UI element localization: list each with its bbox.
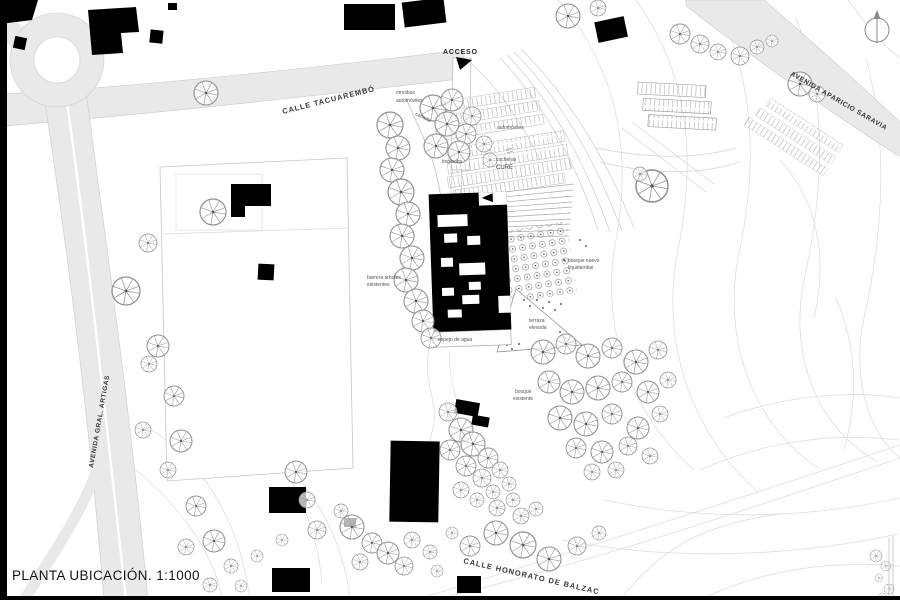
tree-icon bbox=[476, 136, 492, 152]
tree-icon bbox=[285, 461, 307, 483]
tree-icon bbox=[531, 340, 555, 364]
building-block bbox=[149, 29, 163, 43]
tree-icon bbox=[637, 381, 659, 403]
building-block bbox=[471, 415, 489, 428]
tree-icon bbox=[377, 542, 399, 564]
tree-icon bbox=[139, 234, 157, 252]
tree-icon bbox=[456, 456, 476, 476]
annotation-terraza-1: terraza bbox=[529, 318, 545, 324]
annotation-barrera-2: existentes bbox=[367, 282, 390, 288]
tree-icon bbox=[586, 376, 610, 400]
building-block bbox=[402, 0, 447, 27]
building-block bbox=[272, 568, 310, 592]
tree-icon bbox=[453, 482, 469, 498]
tree-icon bbox=[160, 462, 176, 478]
building-block bbox=[231, 202, 245, 217]
tree-icon bbox=[473, 469, 491, 487]
tree-icon bbox=[870, 550, 882, 562]
tree-icon bbox=[377, 112, 403, 138]
tree-icon bbox=[592, 526, 606, 540]
tree-icon bbox=[276, 534, 288, 546]
tree-icon bbox=[560, 380, 584, 404]
tree-icon bbox=[446, 527, 458, 539]
annotation-automoviles-este: automóviles bbox=[497, 125, 524, 131]
tree-icon bbox=[170, 430, 192, 452]
tree-icon bbox=[423, 545, 437, 559]
tree-icon bbox=[627, 417, 649, 439]
tree-icon bbox=[380, 158, 404, 182]
building-block bbox=[13, 36, 27, 50]
tree-icon bbox=[633, 167, 647, 181]
tree-icon bbox=[574, 412, 598, 436]
liquidambar-grid bbox=[501, 221, 577, 302]
tree-icon bbox=[386, 136, 410, 160]
tree-icon bbox=[584, 464, 600, 480]
tree-icon bbox=[710, 44, 726, 60]
building-block bbox=[258, 264, 275, 281]
tree-icon bbox=[489, 500, 505, 516]
annotation-tinglados: tinglados bbox=[442, 159, 463, 165]
annotation-bosque-nuevo-1: bosque nuevo bbox=[568, 258, 600, 264]
tree-icon bbox=[691, 35, 709, 53]
annotation-espejo: espejo de agua bbox=[438, 337, 472, 343]
building-block bbox=[457, 576, 481, 593]
tree-icon bbox=[340, 515, 364, 539]
annotation-automoviles-oeste: automóviles bbox=[396, 98, 423, 104]
tree-icon bbox=[147, 335, 169, 357]
annotation-terraza-2: elevada bbox=[529, 325, 547, 331]
site-plan: CALLE TACUAREMBÓ AVENIDA APARICIO SARAVI… bbox=[0, 0, 900, 600]
tree-icon bbox=[424, 134, 448, 158]
tree-icon bbox=[470, 493, 484, 507]
tree-icon bbox=[602, 404, 622, 424]
tree-icon bbox=[203, 530, 225, 552]
left-frame-bar bbox=[0, 0, 7, 600]
tree-icon bbox=[576, 344, 600, 368]
tree-icon bbox=[608, 462, 624, 478]
building-block bbox=[454, 399, 480, 417]
annotation-omnibus: ómnibus bbox=[396, 90, 415, 96]
tree-icon bbox=[224, 559, 238, 573]
tree-icon bbox=[178, 539, 194, 555]
tree-icon bbox=[492, 462, 508, 478]
tree-icon bbox=[619, 437, 637, 455]
tree-icon bbox=[875, 574, 883, 582]
tree-icon bbox=[404, 532, 420, 548]
tree-icon bbox=[602, 338, 622, 358]
tree-icon bbox=[299, 492, 315, 508]
tree-icon bbox=[506, 493, 520, 507]
tree-icon bbox=[200, 199, 226, 225]
annotation-bosque-nuevo-2: liquidambar bbox=[568, 265, 594, 271]
tree-icon bbox=[483, 153, 497, 167]
tree-icon bbox=[186, 496, 206, 516]
annotation-cocheras: cocheras bbox=[496, 157, 517, 163]
tree-icon bbox=[203, 578, 217, 592]
tree-icon bbox=[112, 277, 140, 305]
tree-icon bbox=[396, 202, 420, 226]
tree-icon bbox=[404, 289, 428, 313]
tree-icon bbox=[135, 422, 151, 438]
tree-icon bbox=[649, 341, 667, 359]
tree-icon bbox=[486, 485, 500, 499]
tree-icon bbox=[435, 112, 459, 136]
tree-icon bbox=[731, 47, 749, 65]
tree-icon bbox=[750, 40, 764, 54]
tree-icon bbox=[529, 502, 543, 516]
main-building bbox=[429, 192, 512, 333]
tree-icon bbox=[642, 448, 658, 464]
tree-icon bbox=[660, 372, 676, 388]
tree-icon bbox=[484, 521, 508, 545]
tree-icon bbox=[510, 532, 536, 558]
bottom-frame-bar bbox=[0, 596, 900, 600]
north-arrow-icon bbox=[865, 10, 889, 43]
sports-field bbox=[160, 158, 353, 481]
building-block bbox=[88, 7, 139, 55]
tree-icon bbox=[502, 477, 516, 491]
tree-icon bbox=[439, 403, 457, 421]
tree-icon bbox=[766, 35, 778, 47]
tree-icon bbox=[556, 4, 580, 28]
access-label: ACCESO bbox=[443, 49, 478, 56]
tree-icon bbox=[568, 537, 586, 555]
road-artigas bbox=[44, 90, 148, 600]
tree-icon bbox=[388, 179, 414, 205]
tree-icon bbox=[441, 89, 463, 111]
tree-icon bbox=[652, 406, 668, 422]
tree-icon bbox=[395, 557, 413, 575]
annotation-cocheras-sigla: CURE bbox=[496, 165, 513, 171]
tree-icon bbox=[612, 372, 632, 392]
tree-icon bbox=[513, 508, 529, 524]
tree-icon bbox=[566, 438, 586, 458]
tree-icon bbox=[463, 107, 481, 125]
tree-icon bbox=[251, 550, 263, 562]
annotation-bosque-existente-2: existente bbox=[513, 396, 533, 402]
building-block bbox=[389, 441, 439, 523]
tree-icon bbox=[164, 386, 184, 406]
tree-icon bbox=[440, 440, 460, 460]
building-block bbox=[594, 16, 628, 43]
tree-icon bbox=[670, 24, 690, 44]
tree-icon bbox=[548, 406, 572, 430]
tree-icon bbox=[390, 224, 414, 248]
site-plan-drawing: CALLE TACUAREMBÓ AVENIDA APARICIO SARAVI… bbox=[0, 0, 900, 600]
roundabout-island bbox=[34, 37, 80, 83]
tree-icon bbox=[624, 350, 648, 374]
tree-icon bbox=[194, 81, 218, 105]
annotation-barrera-1: barrera árboles bbox=[367, 275, 401, 281]
building-block bbox=[168, 3, 177, 10]
tree-icon bbox=[556, 334, 576, 354]
tree-icon bbox=[141, 356, 157, 372]
building-block bbox=[344, 4, 395, 30]
tree-icon bbox=[537, 547, 561, 571]
tree-icon bbox=[431, 565, 443, 577]
shed-buildings bbox=[636, 82, 718, 130]
tree-icon bbox=[308, 521, 326, 539]
tree-icon bbox=[235, 580, 247, 592]
tree-icon bbox=[591, 441, 613, 463]
annotation-bosque-existente-1: bosque bbox=[515, 389, 532, 395]
street-label-balzac: CALLE HONORATO DE BALZAC bbox=[463, 556, 601, 596]
tree-icon bbox=[460, 536, 480, 556]
tree-icon bbox=[334, 504, 348, 518]
tree-icon bbox=[881, 561, 891, 571]
plan-title: PLANTA UBICACIÓN. 1:1000 bbox=[12, 568, 200, 583]
tree-icon bbox=[590, 0, 606, 16]
tree-icon bbox=[400, 246, 424, 270]
tree-icon bbox=[352, 554, 368, 570]
tree-icon bbox=[538, 371, 560, 393]
